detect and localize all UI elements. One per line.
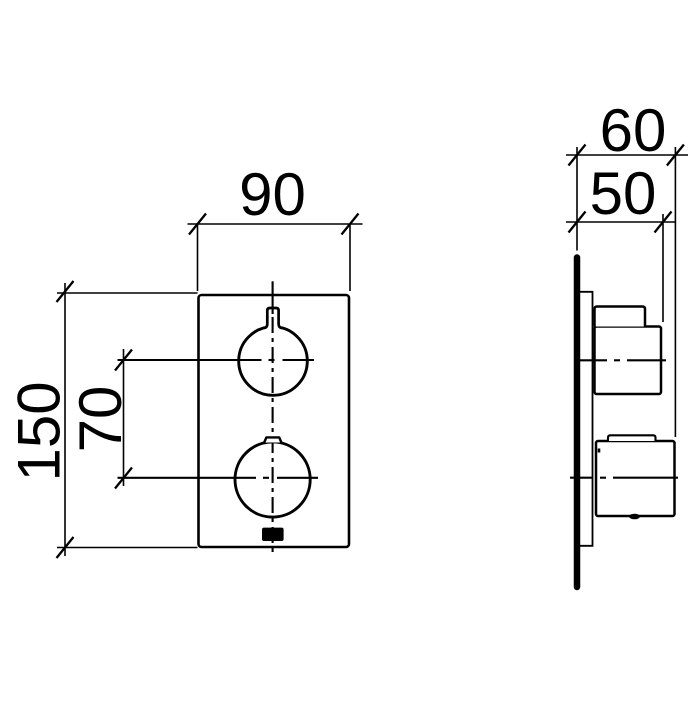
svg-text:90: 90 — [239, 161, 306, 228]
svg-text:60: 60 — [600, 97, 667, 164]
svg-text:150: 150 — [6, 381, 73, 481]
svg-text:50: 50 — [590, 160, 657, 227]
svg-text:70: 70 — [67, 386, 134, 453]
